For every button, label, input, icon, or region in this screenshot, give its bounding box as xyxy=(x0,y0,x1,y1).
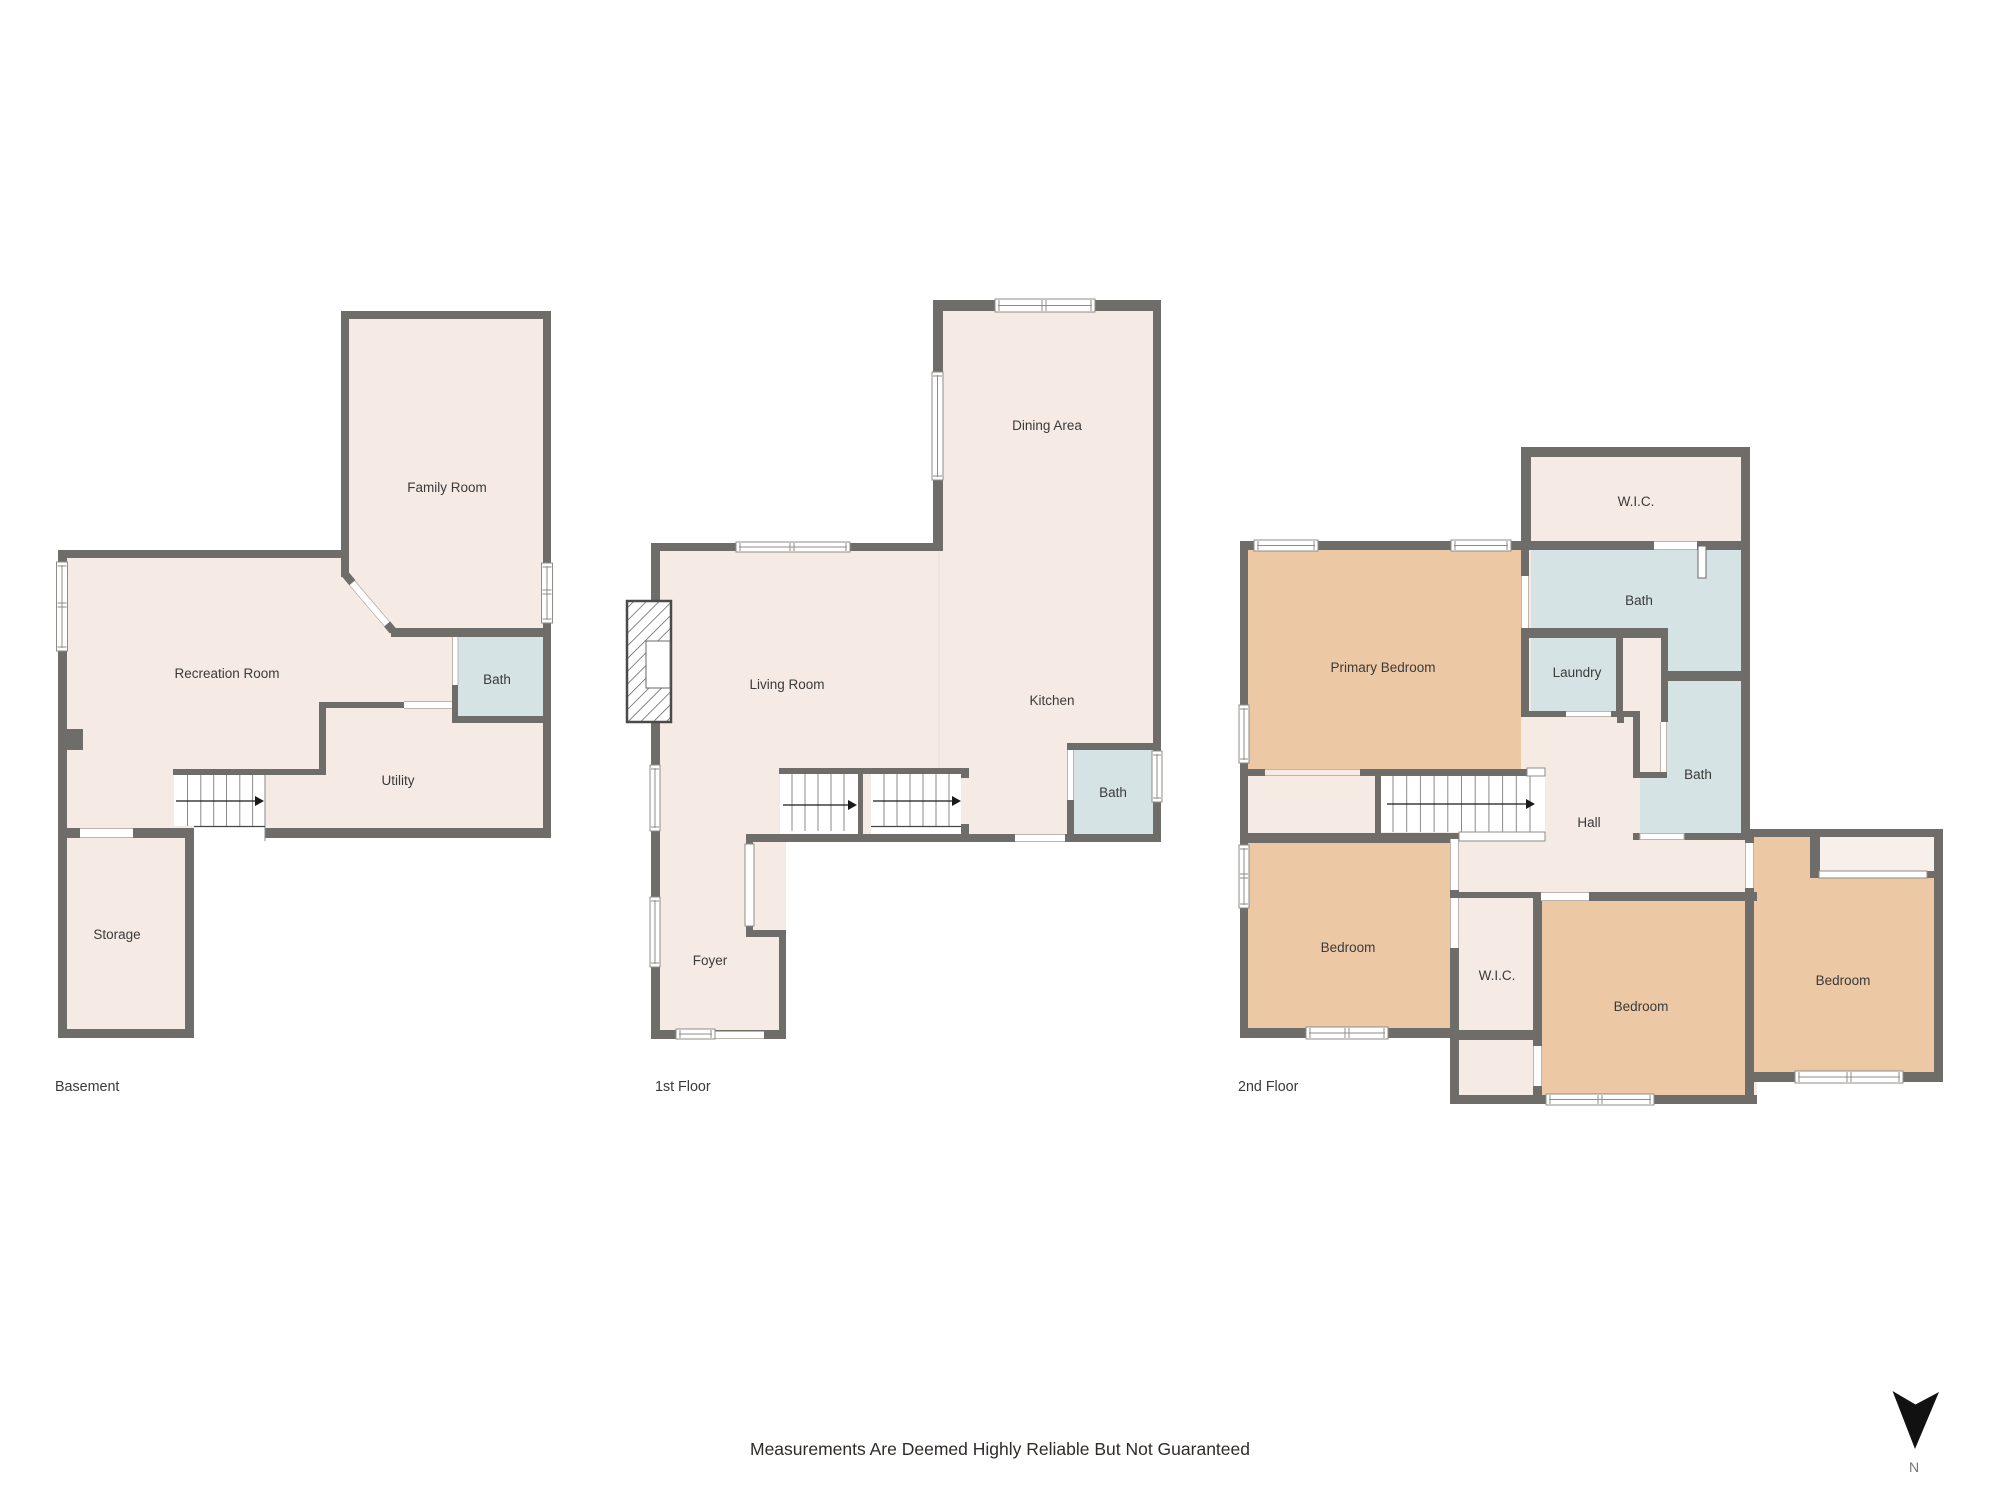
svg-text:Measurements Are Deemed Highly: Measurements Are Deemed Highly Reliable … xyxy=(750,1439,1250,1459)
svg-text:Storage: Storage xyxy=(93,927,140,942)
svg-text:N: N xyxy=(1909,1459,1919,1475)
svg-text:Bath: Bath xyxy=(483,672,511,687)
svg-text:Bath: Bath xyxy=(1099,785,1127,800)
svg-text:Family Room: Family Room xyxy=(407,480,487,495)
svg-text:Utility: Utility xyxy=(382,773,415,788)
svg-text:W.I.C.: W.I.C. xyxy=(1618,494,1655,509)
svg-text:Hall: Hall xyxy=(1577,815,1600,830)
svg-text:W.I.C.: W.I.C. xyxy=(1479,968,1516,983)
svg-text:Bedroom: Bedroom xyxy=(1614,999,1669,1014)
svg-text:Recreation Room: Recreation Room xyxy=(174,666,279,681)
svg-text:Primary Bedroom: Primary Bedroom xyxy=(1330,660,1435,675)
svg-text:2nd Floor: 2nd Floor xyxy=(1238,1079,1299,1095)
svg-text:Basement: Basement xyxy=(55,1079,119,1095)
svg-text:Foyer: Foyer xyxy=(693,953,728,968)
svg-text:Bath: Bath xyxy=(1625,593,1653,608)
svg-text:Kitchen: Kitchen xyxy=(1029,693,1074,708)
svg-text:Bedroom: Bedroom xyxy=(1321,940,1376,955)
svg-text:1st Floor: 1st Floor xyxy=(655,1079,711,1095)
svg-text:Bath: Bath xyxy=(1684,767,1712,782)
svg-text:Dining Area: Dining Area xyxy=(1012,418,1082,433)
svg-text:Living Room: Living Room xyxy=(749,677,824,692)
svg-text:Laundry: Laundry xyxy=(1553,665,1602,680)
svg-text:Bedroom: Bedroom xyxy=(1816,973,1871,988)
